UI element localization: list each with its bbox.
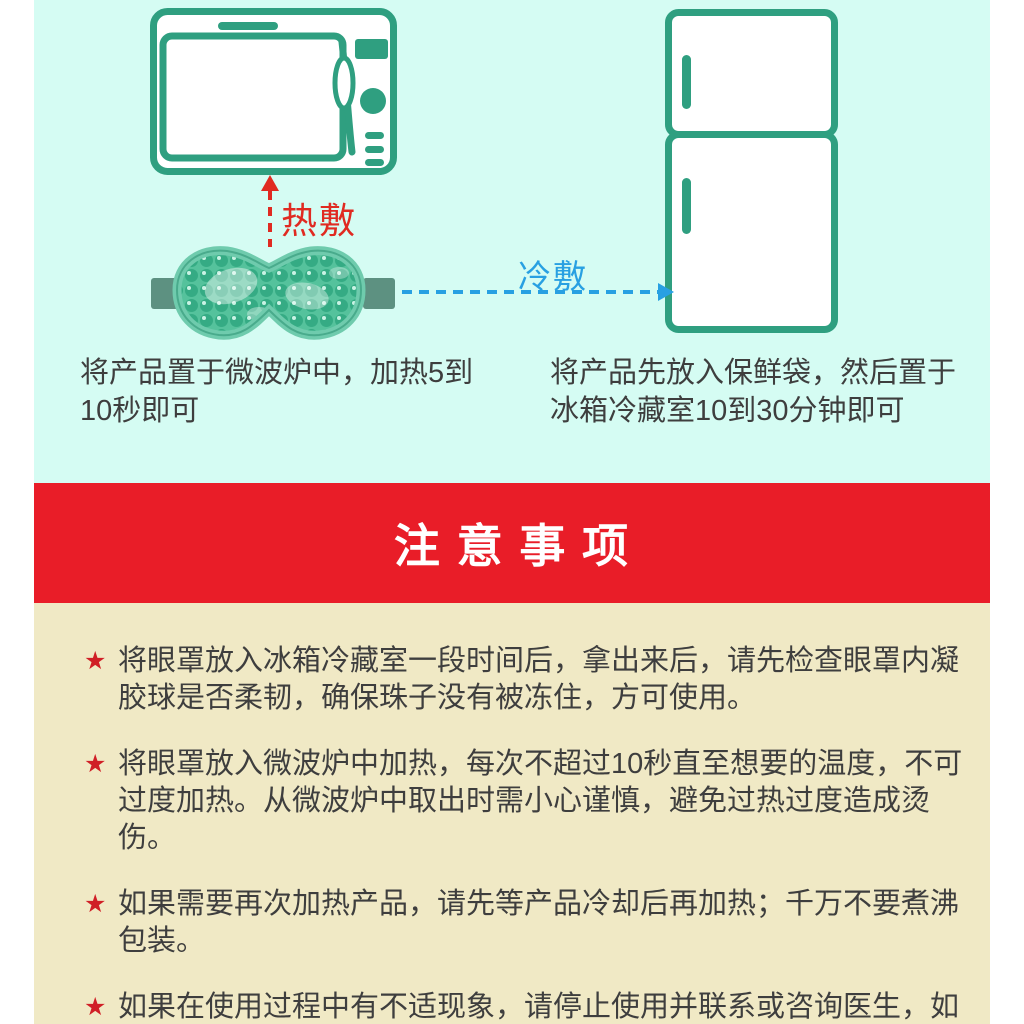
precaution-text: 将眼罩放入冰箱冷藏室一段时间后，拿出来后，请先检查眼罩内凝胶球是否柔韧，确保珠子… <box>118 643 965 717</box>
precaution-item: ★将眼罩放入冰箱冷藏室一段时间后，拿出来后，请先检查眼罩内凝胶球是否柔韧，确保珠… <box>84 643 965 717</box>
precaution-list: ★将眼罩放入冰箱冷藏室一段时间后，拿出来后，请先检查眼罩内凝胶球是否柔韧，确保珠… <box>84 643 965 1024</box>
star-bullet-icon: ★ <box>84 989 118 1024</box>
precaution-text: 将眼罩放入微波炉中加热，每次不超过10秒直至想要的温度，不可过度加热。从微波炉中… <box>118 746 965 857</box>
precaution-item: ★将眼罩放入微波炉中加热，每次不超过10秒直至想要的温度，不可过度加热。从微波炉… <box>84 746 965 857</box>
notice-banner: 注 意 事 项 <box>34 483 990 603</box>
precaution-text: 如果在使用过程中有不适现象，请停止使用并联系或咨询医生，如果有破损则请停止使用。 <box>118 989 965 1024</box>
star-bullet-icon: ★ <box>84 643 118 680</box>
product-instruction-page: 热敷 冷敷 将产品置于微波炉中，加热5到10秒即可 将产品先放入保鲜袋，然后置于… <box>0 0 1024 1024</box>
hot-compress-arrow <box>268 191 272 247</box>
precaution-text: 如果需要再次加热产品，请先等产品冷却后再加热；千万不要煮沸包装。 <box>118 886 965 960</box>
microwave-icon <box>150 8 397 175</box>
notice-banner-title: 注 意 事 项 <box>394 510 630 576</box>
precautions-section: ★将眼罩放入冰箱冷藏室一段时间后，拿出来后，请先检查眼罩内凝胶球是否柔韧，确保珠… <box>34 603 990 1024</box>
microwave-caption: 将产品置于微波炉中，加热5到10秒即可 <box>80 354 498 430</box>
star-bullet-icon: ★ <box>84 746 118 783</box>
hot-compress-arrowhead-icon <box>261 175 279 191</box>
usage-section: 热敷 冷敷 将产品置于微波炉中，加热5到10秒即可 将产品先放入保鲜袋，然后置于… <box>34 0 990 483</box>
fridge-caption: 将产品先放入保鲜袋，然后置于冰箱冷藏室10到30分钟即可 <box>550 354 980 430</box>
cold-compress-label: 冷敷 <box>518 250 588 298</box>
gel-bead-eye-mask-illustration <box>139 238 399 348</box>
precaution-item: ★如果需要再次加热产品，请先等产品冷却后再加热；千万不要煮沸包装。 <box>84 886 965 960</box>
cold-compress-arrowhead-icon <box>658 283 674 301</box>
star-bullet-icon: ★ <box>84 886 118 923</box>
content-column: 热敷 冷敷 将产品置于微波炉中，加热5到10秒即可 将产品先放入保鲜袋，然后置于… <box>34 0 990 1024</box>
refrigerator-icon <box>665 9 838 334</box>
mask-strap-right <box>363 278 395 309</box>
hot-compress-label: 热敷 <box>281 192 357 244</box>
precaution-item: ★如果在使用过程中有不适现象，请停止使用并联系或咨询医生，如果有破损则请停止使用… <box>84 989 965 1024</box>
